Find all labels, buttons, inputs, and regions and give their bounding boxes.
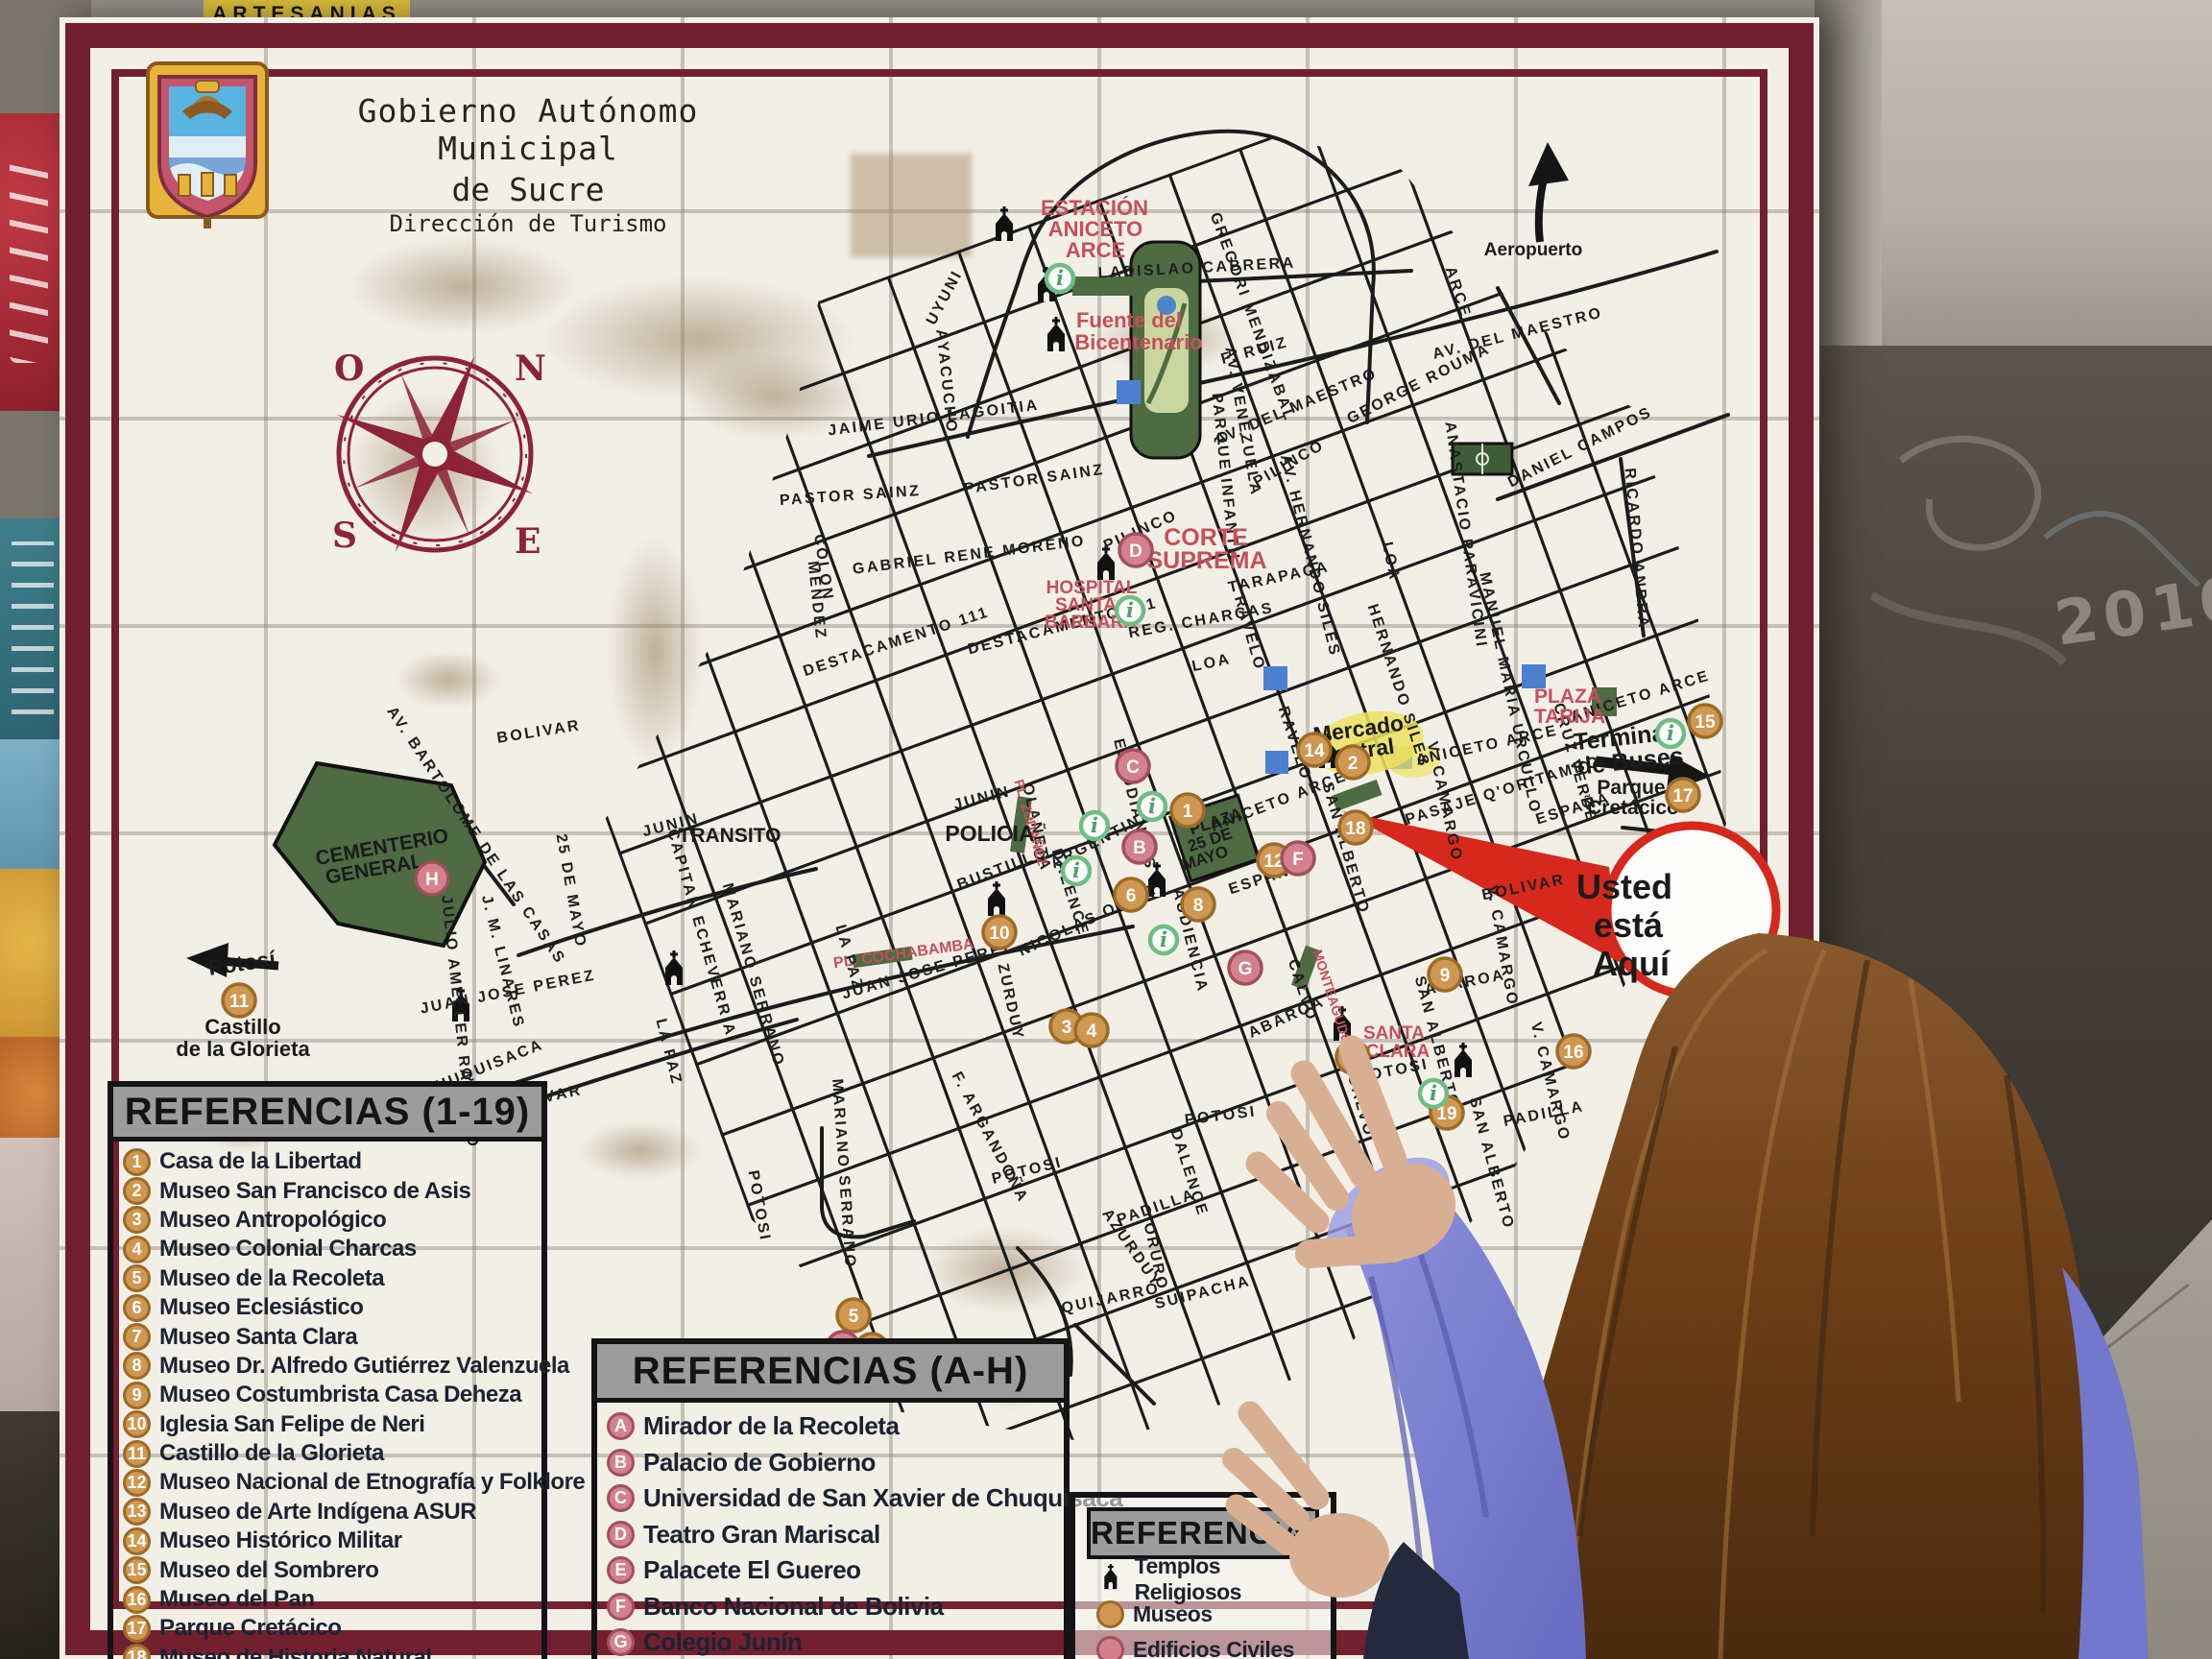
civic-dot-icon: F [607, 1593, 635, 1621]
reference-label: Museo de Historia Natural [159, 1645, 432, 1659]
reference-item: 13Museo de Arte Indígena ASUR [123, 1498, 541, 1527]
reference-item: AMirador de la Recoleta [607, 1408, 1064, 1445]
reference-label: Museo del Sombrero [159, 1557, 378, 1584]
reference-item: 1Casa de la Libertad [123, 1147, 541, 1176]
references-1-19-title: REFERENCIAS (1-19) [113, 1087, 541, 1142]
reference-label: Museo de Arte Indígena ASUR [159, 1499, 476, 1526]
reference-item: 3Museo Antropológico [123, 1206, 541, 1235]
civic-dot-icon: E [607, 1556, 635, 1584]
civic-dot-icon: D [607, 1521, 635, 1549]
reference-item: 16Museo del Pan [123, 1585, 541, 1614]
legend-item-civic: Edificios Civiles [1075, 1632, 1331, 1659]
reference-label: Teatro Gran Mariscal [643, 1520, 880, 1550]
museum-dot-icon: 12 [123, 1469, 151, 1497]
street-photo-scene: ARTESANIAS 2010 Gob [0, 0, 2212, 1659]
museum-dot-icon: 3 [123, 1206, 151, 1234]
reference-label: Museo Nacional de Etnografía y Folklore [159, 1469, 585, 1496]
reference-label: Museo Costumbrista Casa Deheza [159, 1382, 521, 1408]
reference-item: GColegio Junín [607, 1624, 1064, 1659]
references-a-h-title: REFERENCIAS (A-H) [597, 1344, 1064, 1403]
reference-label: Palacio de Gobierno [643, 1448, 876, 1478]
reference-label: Banco Nacional de Bolivia [643, 1592, 944, 1622]
reference-label: Museo Dr. Alfredo Gutiérrez Valenzuela [159, 1353, 569, 1380]
legend-label: Museos [1133, 1601, 1213, 1627]
museum-dot-icon: 13 [123, 1498, 151, 1526]
compass-e: E [515, 521, 541, 562]
legend-title: REFERENCIAS [1087, 1507, 1319, 1559]
civic-dot-icon: A [607, 1412, 635, 1440]
reference-label: Iglesia San Felipe de Neri [159, 1411, 424, 1438]
civic-dot-icon [1096, 1636, 1124, 1659]
museum-dot-icon: 7 [123, 1323, 151, 1351]
refs2-list: AMirador de la RecoletaBPalacio de Gobie… [597, 1408, 1064, 1659]
reference-label: Museo Antropológico [159, 1207, 386, 1234]
reference-item: EPalacete El Guereo [607, 1552, 1064, 1589]
reference-item: 9Museo Costumbrista Casa Deheza [123, 1381, 541, 1409]
title-line-2: de Sucre [269, 171, 787, 208]
legend-item-temples: Templos Religiosos [1075, 1561, 1331, 1597]
stall-red-sign [0, 113, 63, 411]
reference-item: 8Museo Dr. Alfredo Gutiérrez Valenzuela [123, 1352, 541, 1381]
museum-dot-icon: 11 [123, 1440, 151, 1468]
reference-item: FBanco Nacional de Bolivia [607, 1589, 1064, 1625]
artesanias-sign: ARTESANIAS [204, 0, 410, 19]
tile-scuff [851, 154, 972, 257]
museum-dot-icon: 16 [123, 1586, 151, 1614]
board-title: Gobierno Autónomo Municipal de Sucre Dir… [269, 92, 787, 237]
legend-label: Edificios Civiles [1133, 1637, 1294, 1659]
civic-dot-icon: G [607, 1628, 635, 1656]
reference-label: Universidad de San Xavier de Chuquisaca [643, 1483, 1122, 1513]
museum-dot-icon: 4 [123, 1236, 151, 1263]
museum-dot-icon: 10 [123, 1410, 151, 1438]
museum-dot-icon: 9 [123, 1382, 151, 1409]
reference-label: Museo del Pan [159, 1586, 315, 1613]
reference-item: BPalacio de Gobierno [607, 1445, 1064, 1481]
reference-item: 4Museo Colonial Charcas [123, 1235, 541, 1263]
references-1-19-box: REFERENCIAS (1-19) 1Casa de la Libertad2… [108, 1081, 547, 1659]
museum-dot-icon: 5 [123, 1264, 151, 1292]
reference-item: 5Museo de la Recoleta [123, 1264, 541, 1293]
museum-dot-icon: 1 [123, 1148, 151, 1176]
reference-item: 10Iglesia San Felipe de Neri [123, 1410, 541, 1439]
compass-o: O [334, 349, 364, 389]
references-a-h-box: REFERENCIAS (A-H) AMirador de la Recolet… [591, 1338, 1070, 1659]
museum-dot-icon: 17 [123, 1615, 151, 1643]
museum-dot-icon: 6 [123, 1294, 151, 1322]
refs1-list: 1Casa de la Libertad2Museo San Francisco… [113, 1147, 541, 1659]
museum-dot-icon: 8 [123, 1352, 151, 1380]
church-icon [1096, 1564, 1125, 1595]
reference-label: Mirador de la Recoleta [643, 1411, 899, 1441]
reference-label: Palacete El Guereo [643, 1555, 861, 1585]
civic-dot-icon: B [607, 1449, 635, 1477]
reference-item: 14Museo Histórico Militar [123, 1527, 541, 1555]
reference-label: Museo Eclesiástico [159, 1294, 363, 1321]
building-top-right [1815, 0, 2212, 403]
reference-item: 15Museo del Sombrero [123, 1555, 541, 1584]
reference-item: 17Parque Cretácico [123, 1614, 541, 1643]
reference-label: Casa de la Libertad [159, 1148, 362, 1175]
title-line-3: Dirección de Turismo [269, 210, 787, 237]
reference-label: Colegio Junín [643, 1627, 802, 1657]
museum-dot-icon: 15 [123, 1556, 151, 1584]
reference-label: Museo Santa Clara [159, 1324, 357, 1351]
reference-item: 2Museo San Francisco de Asis [123, 1176, 541, 1205]
museum-dot-icon [1096, 1600, 1124, 1628]
museum-dot-icon: 14 [123, 1527, 151, 1555]
civic-dot-icon: C [607, 1484, 635, 1512]
compass-n: N [515, 349, 546, 389]
museum-dot-icon: 2 [123, 1177, 151, 1205]
reference-item: 18Museo de Historia Natural [123, 1644, 541, 1659]
legend-label: Templos Religiosos [1135, 1553, 1331, 1605]
reference-label: Museo Histórico Militar [159, 1527, 402, 1554]
reference-label: Museo Colonial Charcas [159, 1236, 417, 1262]
map-legend-box: REFERENCIAS Templos Religiosos Museos Ed… [1070, 1492, 1336, 1659]
reference-item: DTeatro Gran Mariscal [607, 1517, 1064, 1553]
reference-label: Castillo de la Glorieta [159, 1440, 384, 1467]
sucre-coat-of-arms [146, 61, 269, 230]
reference-label: Museo de la Recoleta [159, 1265, 384, 1292]
compass-s: S [332, 516, 357, 556]
reference-item: 6Museo Eclesiástico [123, 1293, 541, 1322]
title-line-1: Gobierno Autónomo Municipal [269, 92, 787, 167]
compass-rose: N O S E [305, 325, 565, 584]
reference-item: 11Castillo de la Glorieta [123, 1439, 541, 1468]
reference-label: Museo San Francisco de Asis [159, 1178, 470, 1205]
museum-dot-icon: 18 [123, 1644, 151, 1659]
reference-item: 12Museo Nacional de Etnografía y Folklor… [123, 1468, 541, 1497]
reference-label: Parque Cretácico [159, 1615, 341, 1642]
reference-item: CUniversidad de San Xavier de Chuquisaca [607, 1480, 1064, 1517]
reference-item: 7Museo Santa Clara [123, 1322, 541, 1351]
